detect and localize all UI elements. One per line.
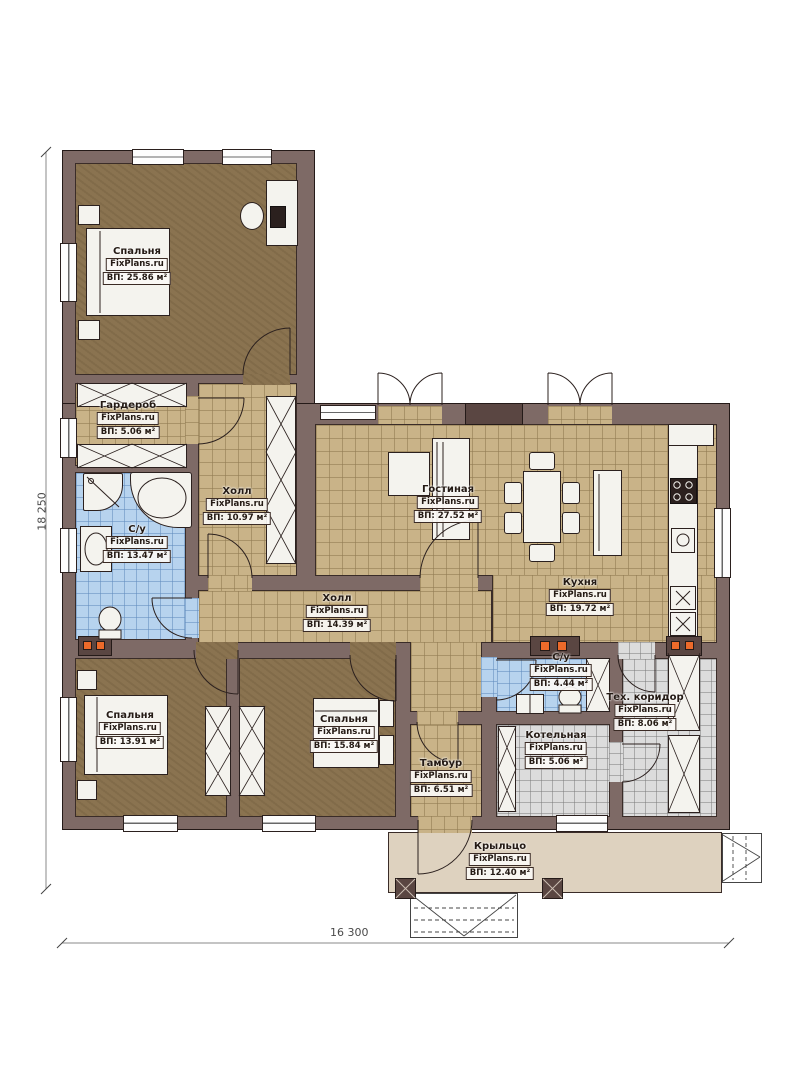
room-area: ВП: 4.44 м² [530, 678, 593, 691]
room-label-wardrobe: Гардероб FixPlans.ru ВП: 5.06 м² [97, 400, 160, 439]
window [222, 149, 272, 165]
dining-chair [504, 512, 522, 534]
desk-chair [240, 202, 264, 230]
window [262, 815, 316, 832]
computer-monitor [270, 206, 286, 228]
room-name: Тамбур [420, 758, 462, 769]
room-label-hall-1: Холл FixPlans.ru ВП: 10.97 м² [203, 486, 271, 525]
room-watermark: FixPlans.ru [525, 742, 587, 755]
flue [557, 641, 567, 651]
room-watermark: FixPlans.ru [530, 664, 592, 677]
room-area: ВП: 13.91 м² [96, 736, 164, 749]
room-area: ВП: 5.06 м² [97, 426, 160, 439]
dining-chair [529, 544, 555, 562]
dimension-bottom: 16 300 [330, 926, 369, 939]
room-area: ВП: 25.86 м² [103, 272, 171, 285]
window [60, 697, 77, 762]
kitchen-corner-counter [668, 424, 714, 446]
window [320, 405, 376, 420]
room-name: Котельная [525, 730, 586, 741]
corridor-closet [668, 735, 700, 813]
room-area: ВП: 8.06 м² [614, 718, 677, 731]
nightstand [77, 670, 97, 690]
room-label-bedroom-2: Спальня FixPlans.ru ВП: 13.91 м² [96, 710, 164, 749]
window [556, 815, 608, 832]
room-name: Гостиная [422, 484, 474, 495]
room-watermark: FixPlans.ru [206, 498, 268, 511]
door-opening [618, 642, 655, 659]
door-opening [609, 742, 623, 782]
window [132, 149, 184, 165]
room-area: ВП: 13.47 м² [103, 550, 171, 563]
door-opening [418, 816, 472, 833]
room-watermark: FixPlans.ru [410, 770, 472, 783]
door-opening [481, 657, 497, 697]
door-opening [208, 575, 252, 591]
dining-chair [562, 512, 580, 534]
room-label-boiler-room: Котельная FixPlans.ru ВП: 5.06 м² [525, 730, 588, 769]
flue [671, 641, 680, 650]
room-name: Гардероб [100, 400, 156, 411]
door-opening [196, 642, 238, 659]
flue [96, 641, 105, 650]
flue [685, 641, 694, 650]
bedroom-closet [239, 706, 265, 796]
wardrobe-cabinet [77, 444, 187, 468]
dining-chair [562, 482, 580, 504]
window [123, 815, 178, 832]
porch-post [542, 878, 563, 899]
room-name: Крыльцо [474, 841, 526, 852]
room-watermark: FixPlans.ru [313, 726, 375, 739]
dining-chair [529, 452, 555, 470]
flue [540, 641, 550, 651]
door-opening [417, 711, 458, 725]
room-label-bathroom-2: С/у FixPlans.ru ВП: 4.44 м² [530, 652, 593, 691]
room-watermark: FixPlans.ru [469, 853, 531, 866]
room-name: С/у [128, 524, 146, 535]
front-steps [410, 893, 518, 938]
nightstand [78, 320, 100, 340]
side-steps [722, 833, 762, 883]
room-watermark: FixPlans.ru [614, 704, 676, 717]
door-opening [185, 396, 199, 444]
room-area: ВП: 6.51 м² [410, 784, 473, 797]
room-watermark: FixPlans.ru [106, 258, 168, 271]
room-watermark: FixPlans.ru [106, 536, 168, 549]
room-name: С/у [552, 652, 570, 663]
dining-chair [504, 482, 522, 504]
window [60, 418, 77, 458]
porch-post [395, 878, 416, 899]
room-name: Спальня [113, 246, 161, 257]
room-label-bathroom-1: С/у FixPlans.ru ВП: 13.47 м² [103, 524, 171, 563]
french-door-opening [548, 406, 612, 424]
hall-closet [266, 396, 296, 564]
room-area: ВП: 15.84 м² [310, 740, 378, 753]
room-area: ВП: 12.40 м² [466, 867, 534, 880]
door-opening [350, 642, 396, 659]
room-label-vestibule: Тамбур FixPlans.ru ВП: 6.51 м² [410, 758, 473, 797]
room-name: Кухня [563, 577, 597, 588]
floor-plan: 18 250 16 300 Спальня FixPlans.ru ВП: 25… [0, 0, 792, 1080]
room-watermark: FixPlans.ru [549, 589, 611, 602]
nightstand [78, 205, 100, 225]
sink-cabinet [516, 694, 544, 714]
appliance-cabinet [670, 612, 696, 636]
room-name: Спальня [106, 710, 154, 721]
room-label-hall-2: Холл FixPlans.ru ВП: 14.39 м² [303, 593, 371, 632]
stove [670, 478, 697, 504]
door-opening [185, 598, 199, 638]
nightstand [379, 700, 394, 727]
window [60, 528, 77, 573]
room-watermark: FixPlans.ru [417, 496, 479, 509]
french-door-opening [378, 406, 442, 424]
room-name: Тех. коридор [606, 692, 683, 703]
window [714, 508, 731, 578]
wall-accent-segment [465, 403, 523, 425]
kitchen-sink [671, 528, 695, 553]
room-name: Холл [222, 486, 251, 497]
nightstand [379, 735, 394, 765]
room-label-kitchen: Кухня FixPlans.ru ВП: 19.72 м² [546, 577, 614, 616]
door-opening [420, 574, 478, 591]
room-area: ВП: 10.97 м² [203, 512, 271, 525]
room-area: ВП: 27.52 м² [414, 510, 482, 523]
appliance-cabinet [670, 586, 696, 610]
bedroom-closet [205, 706, 231, 796]
room-watermark: FixPlans.ru [99, 722, 161, 735]
room-label-porch: Крыльцо FixPlans.ru ВП: 12.40 м² [466, 841, 534, 880]
window [60, 243, 77, 302]
room-label-bedroom-master: Спальня FixPlans.ru ВП: 25.86 м² [103, 246, 171, 285]
room-area: ВП: 5.06 м² [525, 756, 588, 769]
room-area: ВП: 19.72 м² [546, 603, 614, 616]
room-label-tech-corridor: Тех. коридор FixPlans.ru ВП: 8.06 м² [606, 692, 683, 731]
room-label-bedroom-3: Спальня FixPlans.ru ВП: 15.84 м² [310, 714, 378, 753]
room-watermark: FixPlans.ru [306, 605, 368, 618]
flue [83, 641, 92, 650]
door-opening [243, 374, 290, 385]
room-label-living-room: Гостиная FixPlans.ru ВП: 27.52 м² [414, 484, 482, 523]
floor-corridor-leg [410, 642, 482, 712]
dimension-left: 18 250 [36, 482, 49, 542]
room-area: ВП: 14.39 м² [303, 619, 371, 632]
nightstand [77, 780, 97, 800]
boiler-closet [498, 726, 516, 812]
room-watermark: FixPlans.ru [97, 412, 159, 425]
room-name: Холл [322, 593, 351, 604]
room-name: Спальня [320, 714, 368, 725]
dining-table [523, 471, 561, 543]
kitchen-island [593, 470, 622, 556]
